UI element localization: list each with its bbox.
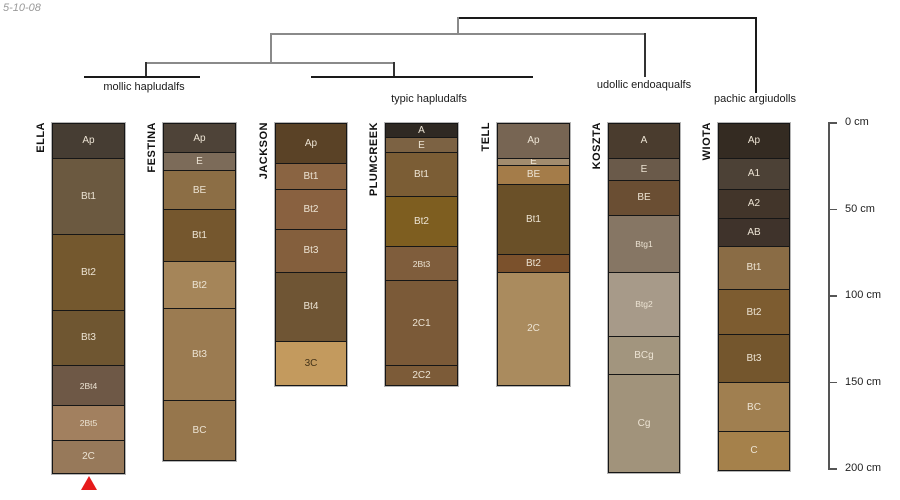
- horizon-festina-ap: Ap: [164, 124, 235, 153]
- horizon-label: E: [418, 140, 425, 151]
- horizon-label: BE: [193, 185, 206, 196]
- soil-column-ella: ApBt1Bt2Bt32Bt42Bt52C: [52, 123, 125, 474]
- horizon-label: Bt2: [526, 258, 541, 269]
- horizon-label: Ap: [82, 135, 94, 146]
- dendrogram-line: [270, 33, 272, 62]
- horizon-jackson-bt3: Bt3: [276, 230, 346, 273]
- horizon-koszta-e: E: [609, 159, 679, 181]
- dendrogram-line: [644, 33, 646, 77]
- horizon-koszta-btg1: Btg1: [609, 216, 679, 273]
- horizon-festina-bt3: Bt3: [164, 309, 235, 401]
- series-label-tell: TELL: [480, 122, 492, 152]
- horizon-label: Bt3: [746, 353, 761, 364]
- horizon-label: Bt1: [192, 230, 207, 241]
- horizon-label: Ap: [193, 133, 205, 144]
- dendrogram-line: [311, 76, 533, 78]
- dendrogram-line: [755, 17, 757, 93]
- horizon-jackson-bt1: Bt1: [276, 164, 346, 190]
- series-label-festina: FESTINA: [146, 122, 158, 173]
- horizon-label: Btg2: [635, 299, 653, 309]
- dendrogram-group-label: pachic argiudolls: [714, 93, 796, 105]
- horizon-label: BC: [193, 425, 207, 436]
- horizon-plumcreek-2bt3: 2Bt3: [386, 247, 457, 282]
- depth-axis-label: 200 cm: [845, 462, 881, 474]
- horizon-jackson-3c: 3C: [276, 342, 346, 385]
- horizon-ella-2bt4: 2Bt4: [53, 366, 124, 406]
- horizon-tell-2c: 2C: [498, 273, 569, 385]
- horizon-label: Bt1: [526, 214, 541, 225]
- horizon-tell-be: BE: [498, 166, 569, 185]
- horizon-label: BE: [637, 192, 650, 203]
- soil-profile-figure: 5-10-08 mollic hapludalfstypic hapludalf…: [0, 0, 900, 500]
- horizon-label: 2C: [82, 451, 95, 462]
- horizon-label: Bt3: [303, 245, 318, 256]
- horizon-label: Bt4: [303, 301, 318, 312]
- horizon-festina-bc: BC: [164, 401, 235, 460]
- horizon-label: 3C: [305, 358, 318, 369]
- dendrogram-line: [457, 17, 755, 19]
- horizon-label: Bt1: [303, 171, 318, 182]
- depth-axis-label: 100 cm: [845, 289, 881, 301]
- horizon-ella-ap: Ap: [53, 124, 124, 159]
- horizon-ella-2bt5: 2Bt5: [53, 406, 124, 441]
- horizon-label: E: [530, 159, 537, 166]
- horizon-label: Ap: [748, 135, 760, 146]
- depth-axis-label: 0 cm: [845, 116, 869, 128]
- horizon-label: E: [196, 156, 203, 167]
- horizon-wiota-c: C: [719, 432, 789, 470]
- horizon-plumcreek-bt1: Bt1: [386, 153, 457, 196]
- depth-axis-tick: [828, 295, 837, 297]
- depth-axis-tick: [828, 468, 837, 470]
- horizon-label: Bt2: [81, 267, 96, 278]
- horizon-label: Bt2: [414, 216, 429, 227]
- horizon-label: 2Bt4: [80, 381, 98, 391]
- horizon-ella-bt2: Bt2: [53, 235, 124, 311]
- horizon-label: Bt2: [303, 204, 318, 215]
- series-label-jackson: JACKSON: [258, 122, 270, 179]
- horizon-tell-bt2: Bt2: [498, 255, 569, 272]
- depth-axis-tick: [828, 209, 837, 211]
- horizon-plumcreek-bt2: Bt2: [386, 197, 457, 247]
- horizon-label: Bt2: [192, 280, 207, 291]
- horizon-ella-2c: 2C: [53, 441, 124, 474]
- horizon-koszta-be: BE: [609, 181, 679, 216]
- horizon-label: BE: [527, 169, 540, 180]
- horizon-wiota-a1: A1: [719, 159, 789, 190]
- horizon-label: A2: [748, 198, 760, 209]
- horizon-wiota-bt3: Bt3: [719, 335, 789, 383]
- horizon-label: 2C1: [412, 318, 430, 329]
- horizon-wiota-bc: BC: [719, 383, 789, 431]
- dendrogram-group-label: mollic hapludalfs: [103, 81, 184, 93]
- series-label-wiota: WIOTA: [701, 122, 713, 160]
- horizon-label: 2C2: [412, 370, 430, 381]
- depth-axis-tick: [828, 382, 837, 384]
- dendrogram-line: [393, 62, 395, 76]
- soil-column-tell: ApEBEBt1Bt22C: [497, 123, 570, 386]
- horizon-plumcreek-e: E: [386, 138, 457, 154]
- horizon-label: Btg1: [635, 239, 653, 249]
- horizon-wiota-bt1: Bt1: [719, 247, 789, 290]
- series-label-ella: ELLA: [35, 122, 47, 153]
- horizon-ella-bt3: Bt3: [53, 311, 124, 366]
- dendrogram-group-label: udollic endoaqualfs: [597, 79, 691, 91]
- horizon-festina-bt2: Bt2: [164, 262, 235, 309]
- horizon-label: Bt1: [746, 262, 761, 273]
- horizon-label: AB: [747, 227, 760, 238]
- horizon-plumcreek-a: A: [386, 124, 457, 138]
- horizon-ella-bt1: Bt1: [53, 159, 124, 235]
- horizon-label: Cg: [638, 418, 651, 429]
- horizon-label: BC: [747, 402, 761, 413]
- horizon-label: C: [750, 445, 757, 456]
- horizon-label: A1: [748, 168, 760, 179]
- soil-column-plumcreek: AEBt1Bt22Bt32C12C2: [385, 123, 458, 386]
- horizon-wiota-ab: AB: [719, 219, 789, 247]
- horizon-tell-ap: Ap: [498, 124, 569, 159]
- horizon-wiota-bt2: Bt2: [719, 290, 789, 335]
- horizon-label: Bt1: [414, 169, 429, 180]
- depth-axis-label: 150 cm: [845, 376, 881, 388]
- horizon-koszta-bcg: BCg: [609, 337, 679, 375]
- horizon-label: Bt2: [746, 307, 761, 318]
- horizon-label: 2C: [527, 323, 540, 334]
- horizon-festina-bt1: Bt1: [164, 210, 235, 262]
- horizon-plumcreek-2c1: 2C1: [386, 281, 457, 366]
- horizon-label: Bt3: [192, 349, 207, 360]
- dendrogram-group-label: typic hapludalfs: [391, 93, 467, 105]
- deeper-profile-marker-triangle: [81, 476, 97, 490]
- depth-axis-tick: [828, 122, 837, 124]
- horizon-tell-e: E: [498, 159, 569, 166]
- horizon-label: 2Bt3: [413, 259, 431, 269]
- horizon-wiota-a2: A2: [719, 190, 789, 219]
- horizon-label: E: [641, 164, 648, 175]
- horizon-koszta-a: A: [609, 124, 679, 159]
- horizon-koszta-btg2: Btg2: [609, 273, 679, 337]
- horizon-label: Ap: [305, 138, 317, 149]
- horizon-jackson-bt4: Bt4: [276, 273, 346, 342]
- horizon-plumcreek-2c2: 2C2: [386, 366, 457, 385]
- horizon-label: Bt1: [81, 191, 96, 202]
- depth-axis-label: 50 cm: [845, 203, 875, 215]
- dendrogram-line: [84, 76, 200, 78]
- soil-column-koszta: AEBEBtg1Btg2BCgCg: [608, 123, 680, 473]
- horizon-festina-be: BE: [164, 171, 235, 211]
- series-label-plumcreek: PLUMCREEK: [368, 122, 380, 196]
- horizon-jackson-ap: Ap: [276, 124, 346, 164]
- horizon-tell-bt1: Bt1: [498, 185, 569, 256]
- horizon-koszta-cg: Cg: [609, 375, 679, 472]
- horizon-label: 2Bt5: [80, 418, 98, 428]
- soil-column-jackson: ApBt1Bt2Bt3Bt43C: [275, 123, 347, 386]
- horizon-label: Ap: [527, 135, 539, 146]
- horizon-wiota-ap: Ap: [719, 124, 789, 159]
- soil-column-festina: ApEBEBt1Bt2Bt3BC: [163, 123, 236, 461]
- horizon-label: BCg: [634, 350, 653, 361]
- soil-column-wiota: ApA1A2ABBt1Bt2Bt3BCC: [718, 123, 790, 471]
- dendrogram-line: [457, 17, 459, 33]
- dendrogram-line: [145, 62, 147, 76]
- dendrogram-line: [145, 62, 395, 64]
- dendrogram-line: [270, 33, 644, 35]
- series-label-koszta: KOSZTA: [591, 122, 603, 169]
- horizon-festina-e: E: [164, 153, 235, 170]
- horizon-jackson-bt2: Bt2: [276, 190, 346, 230]
- horizon-label: Bt3: [81, 332, 96, 343]
- horizon-label: A: [418, 125, 425, 136]
- figure-date-note: 5-10-08: [3, 2, 41, 14]
- horizon-label: A: [641, 135, 648, 146]
